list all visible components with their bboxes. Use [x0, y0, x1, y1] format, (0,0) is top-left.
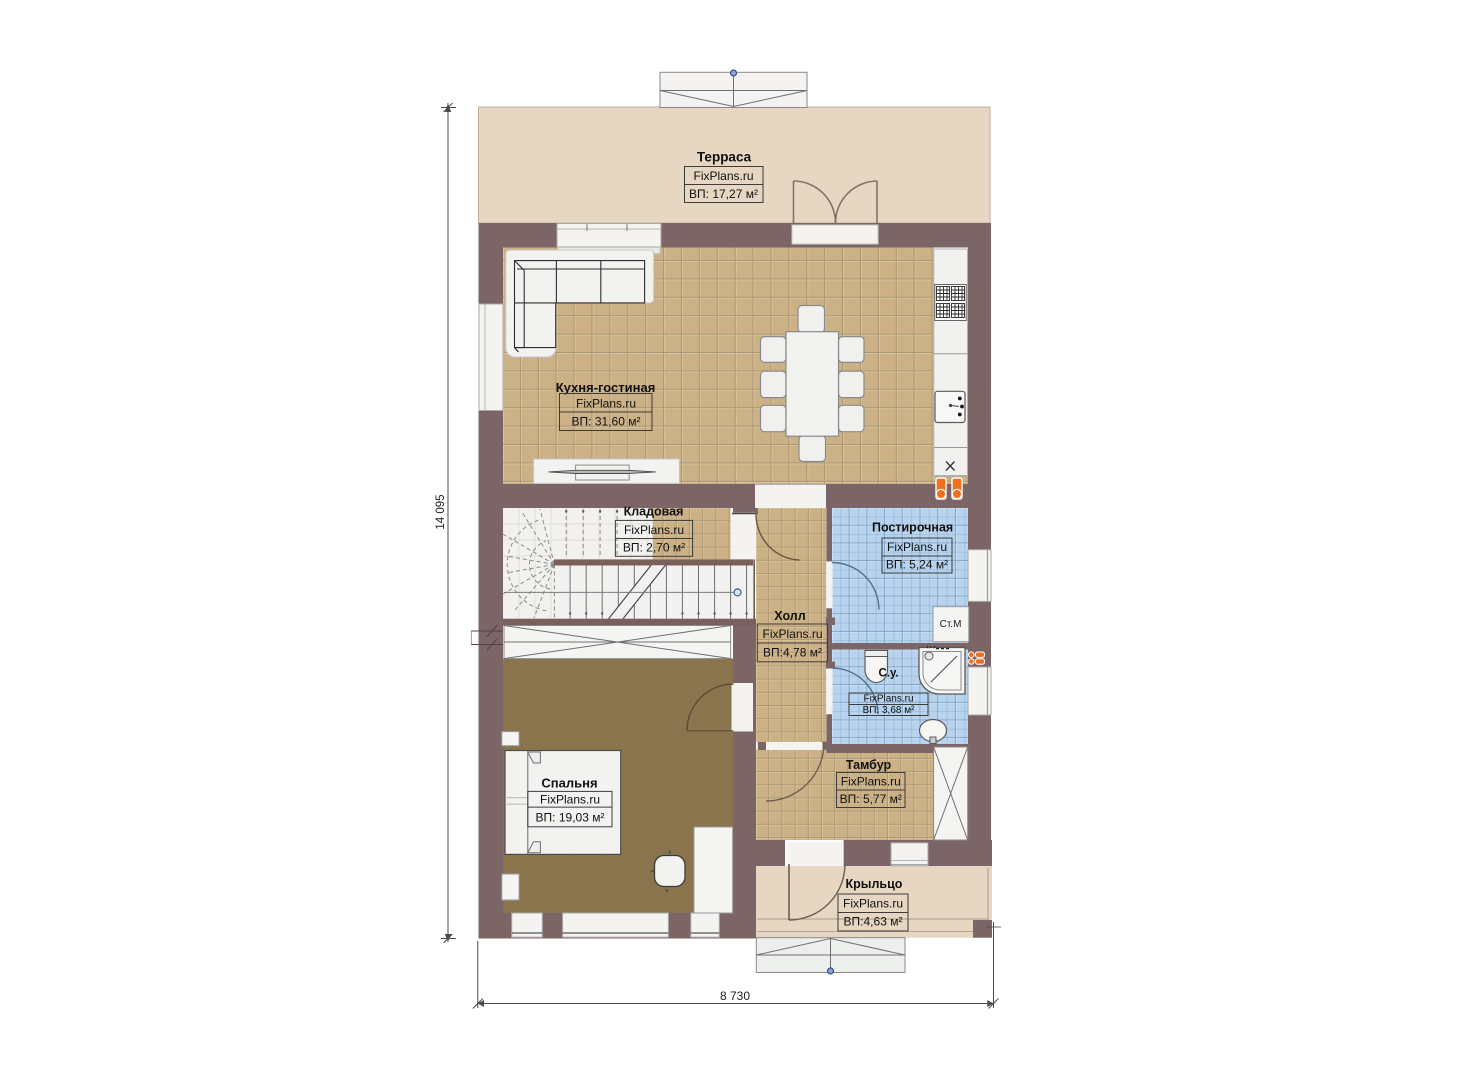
svg-text:8 730: 8 730	[720, 989, 750, 1003]
svg-text:Тамбур: Тамбур	[846, 758, 892, 772]
svg-text:ВП: 5,24 м²: ВП: 5,24 м²	[886, 558, 948, 572]
svg-text:Ст.М: Ст.М	[940, 619, 962, 630]
svg-text:ВП: 17,27 м²: ВП: 17,27 м²	[689, 187, 758, 201]
svg-text:FixPlans.ru: FixPlans.ru	[843, 897, 903, 911]
svg-text:FixPlans.ru: FixPlans.ru	[576, 397, 636, 411]
svg-text:FixPlans.ru: FixPlans.ru	[863, 694, 913, 705]
svg-text:ВП: 31,60 м²: ВП: 31,60 м²	[572, 415, 641, 429]
svg-text:ВП:4,78 м²: ВП:4,78 м²	[763, 645, 822, 659]
svg-text:ВП: 5,77 м²: ВП: 5,77 м²	[840, 792, 902, 806]
svg-text:Терраса: Терраса	[697, 150, 752, 165]
svg-text:FixPlans.ru: FixPlans.ru	[841, 775, 901, 789]
svg-text:Спальня: Спальня	[541, 776, 597, 791]
svg-text:FixPlans.ru: FixPlans.ru	[693, 169, 753, 183]
svg-text:FixPlans.ru: FixPlans.ru	[624, 523, 684, 537]
svg-text:Кухня-гостиная: Кухня-гостиная	[556, 380, 656, 395]
svg-text:Постирочная: Постирочная	[872, 521, 953, 535]
svg-text:ВП: 3,68 м²: ВП: 3,68 м²	[863, 705, 916, 716]
svg-text:Холл: Холл	[774, 609, 805, 623]
svg-text:FixPlans.ru: FixPlans.ru	[540, 793, 600, 807]
svg-text:FixPlans.ru: FixPlans.ru	[887, 540, 947, 554]
svg-text:ВП:4,63 м²: ВП:4,63 м²	[844, 915, 903, 929]
svg-text:Крыльцо: Крыльцо	[846, 877, 903, 891]
svg-text:Кладовая: Кладовая	[624, 505, 684, 519]
svg-text:ВП: 19,03 м²: ВП: 19,03 м²	[536, 811, 605, 825]
svg-text:С.у.: С.у.	[878, 668, 898, 680]
svg-text:ВП: 2,70 м²: ВП: 2,70 м²	[623, 541, 685, 555]
svg-text:14 095: 14 095	[435, 494, 447, 529]
svg-text:FixPlans.ru: FixPlans.ru	[762, 627, 822, 641]
